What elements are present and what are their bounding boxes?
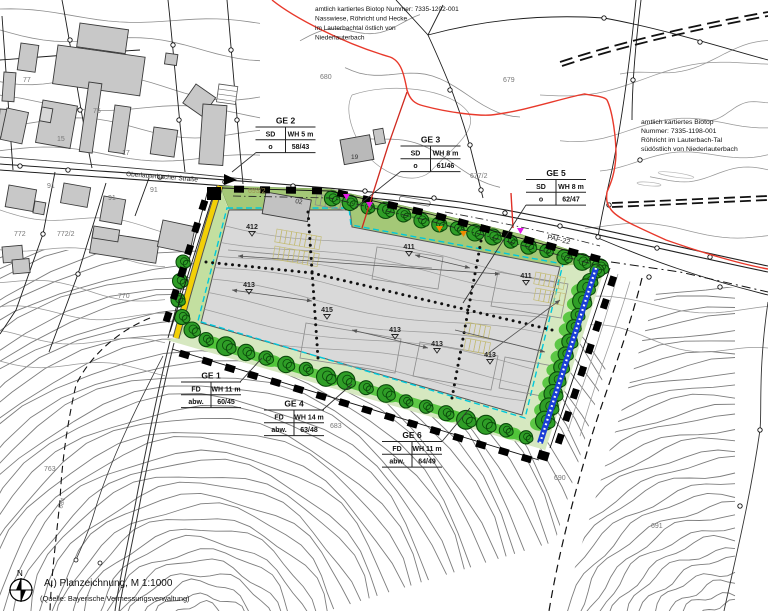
svg-text:413: 413 xyxy=(243,282,255,289)
svg-text:75: 75 xyxy=(93,108,101,115)
svg-text:WH 5 m: WH 5 m xyxy=(288,131,314,138)
svg-text:91: 91 xyxy=(150,187,158,194)
svg-text:abw.: abw. xyxy=(389,459,404,466)
svg-text:19: 19 xyxy=(351,154,359,161)
svg-text:91: 91 xyxy=(108,195,116,202)
svg-text:770: 770 xyxy=(118,293,130,300)
svg-text:südöstlich von Niederlauterbac: südöstlich von Niederlauterbach xyxy=(641,146,738,153)
svg-text:WH 8 m: WH 8 m xyxy=(433,150,459,157)
svg-text:amtlich kartiertes Biotop: amtlich kartiertes Biotop xyxy=(641,119,714,126)
svg-text:Nummer: 7335-1198-001: Nummer: 7335-1198-001 xyxy=(641,128,717,135)
svg-text:77: 77 xyxy=(23,77,31,84)
svg-text:Nasswiese, Röhricht und Hecke: Nasswiese, Röhricht und Hecke xyxy=(315,16,408,23)
svg-text:GE 5: GE 5 xyxy=(546,168,566,178)
svg-text:N: N xyxy=(17,569,23,578)
svg-text:63/48: 63/48 xyxy=(300,427,318,434)
svg-text:A.) Planzeichnung, M 1:1000: A.) Planzeichnung, M 1:1000 xyxy=(44,578,173,589)
svg-text:FD: FD xyxy=(274,414,283,421)
svg-text:58/43: 58/43 xyxy=(292,144,310,151)
svg-text:411: 411 xyxy=(403,244,414,251)
svg-text:64/49: 64/49 xyxy=(418,459,436,466)
svg-text:SD: SD xyxy=(266,131,276,138)
svg-text:415: 415 xyxy=(321,307,333,314)
svg-text:763: 763 xyxy=(44,466,56,473)
svg-text:413: 413 xyxy=(484,352,496,359)
svg-text:91: 91 xyxy=(47,183,55,190)
svg-text:Niederlauterbach: Niederlauterbach xyxy=(315,35,365,42)
svg-text:413: 413 xyxy=(431,341,443,348)
svg-text:WH 11 m: WH 11 m xyxy=(211,386,240,393)
svg-text:GE 4: GE 4 xyxy=(284,399,304,409)
svg-text:WH 8 m: WH 8 m xyxy=(558,184,584,191)
svg-text:(Quelle: Bayerische Vermessung: (Quelle: Bayerische Vermessungsverwaltun… xyxy=(40,594,190,603)
svg-text:GE 2: GE 2 xyxy=(276,116,296,126)
svg-text:411: 411 xyxy=(520,273,531,280)
svg-text:17: 17 xyxy=(122,150,130,157)
svg-text:abw.: abw. xyxy=(271,427,286,434)
svg-text:o: o xyxy=(539,197,543,204)
svg-text:abw.: abw. xyxy=(188,399,203,406)
svg-text:GE 1: GE 1 xyxy=(201,371,221,381)
svg-text:772: 772 xyxy=(14,231,26,238)
svg-text:FD: FD xyxy=(191,386,200,393)
svg-text:amtlich kartiertes Biotop Numm: amtlich kartiertes Biotop Nummer: 7335-1… xyxy=(315,6,459,13)
svg-text:412: 412 xyxy=(246,224,258,231)
svg-text:680: 680 xyxy=(320,74,332,81)
svg-text:413: 413 xyxy=(389,327,401,334)
svg-text:683: 683 xyxy=(330,423,342,430)
svg-text:691: 691 xyxy=(651,523,663,530)
svg-text:677/2: 677/2 xyxy=(470,173,488,180)
svg-text:679: 679 xyxy=(503,77,515,84)
svg-text:WH 14 m: WH 14 m xyxy=(294,414,324,421)
svg-text:690: 690 xyxy=(554,475,566,482)
svg-text:Röhricht im Lauterbach-Tal: Röhricht im Lauterbach-Tal xyxy=(641,137,723,144)
svg-text:o: o xyxy=(413,163,417,170)
svg-text:62/47: 62/47 xyxy=(562,197,580,204)
svg-text:15: 15 xyxy=(57,136,65,143)
svg-text:SD: SD xyxy=(411,150,421,157)
svg-text:FD: FD xyxy=(392,446,401,453)
svg-text:o: o xyxy=(268,144,272,151)
svg-text:GE 3: GE 3 xyxy=(421,135,441,145)
svg-text:im Lauterbachtal östlich von: im Lauterbachtal östlich von xyxy=(315,25,396,32)
svg-text:693/2: 693/2 xyxy=(248,188,266,195)
svg-text:WH 11 m: WH 11 m xyxy=(412,446,441,453)
svg-text:GE 6: GE 6 xyxy=(402,430,422,440)
svg-text:61/46: 61/46 xyxy=(437,163,455,170)
svg-text:772/2: 772/2 xyxy=(57,231,75,238)
svg-text:60/45: 60/45 xyxy=(217,399,235,406)
svg-text:SD: SD xyxy=(536,184,546,191)
